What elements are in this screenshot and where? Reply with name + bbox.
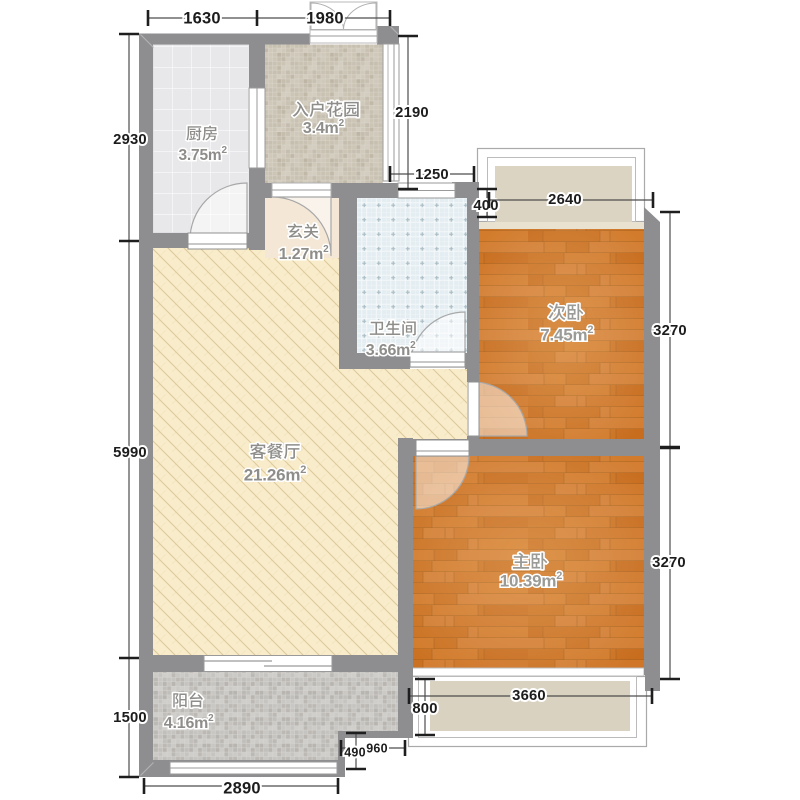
svg-text:1980: 1980 bbox=[306, 9, 344, 27]
svg-text:5990: 5990 bbox=[113, 445, 147, 461]
svg-text:800: 800 bbox=[412, 701, 437, 717]
svg-text:4.16m2: 4.16m2 bbox=[164, 713, 214, 733]
svg-text:21.26m2: 21.26m2 bbox=[244, 464, 306, 485]
svg-text:1.27m2: 1.27m2 bbox=[279, 244, 329, 264]
svg-text:3270: 3270 bbox=[653, 323, 687, 339]
svg-text:960: 960 bbox=[366, 741, 387, 755]
svg-text:490: 490 bbox=[344, 745, 365, 759]
svg-text:2640: 2640 bbox=[548, 192, 582, 208]
svg-text:3660: 3660 bbox=[512, 688, 546, 704]
svg-text:1500: 1500 bbox=[113, 710, 147, 726]
svg-text:3.75m2: 3.75m2 bbox=[179, 145, 228, 164]
svg-text:2930: 2930 bbox=[113, 132, 147, 148]
svg-text:1630: 1630 bbox=[183, 9, 221, 27]
svg-text:3270: 3270 bbox=[652, 555, 686, 571]
svg-text:3.66m2: 3.66m2 bbox=[366, 340, 416, 360]
svg-text:3.4m2: 3.4m2 bbox=[303, 118, 345, 138]
svg-text:10.39m2: 10.39m2 bbox=[500, 570, 562, 591]
svg-text:2890: 2890 bbox=[223, 779, 261, 797]
svg-text:1250: 1250 bbox=[415, 167, 449, 183]
svg-text:7.45m2: 7.45m2 bbox=[540, 324, 593, 345]
svg-text:2190: 2190 bbox=[395, 105, 429, 121]
